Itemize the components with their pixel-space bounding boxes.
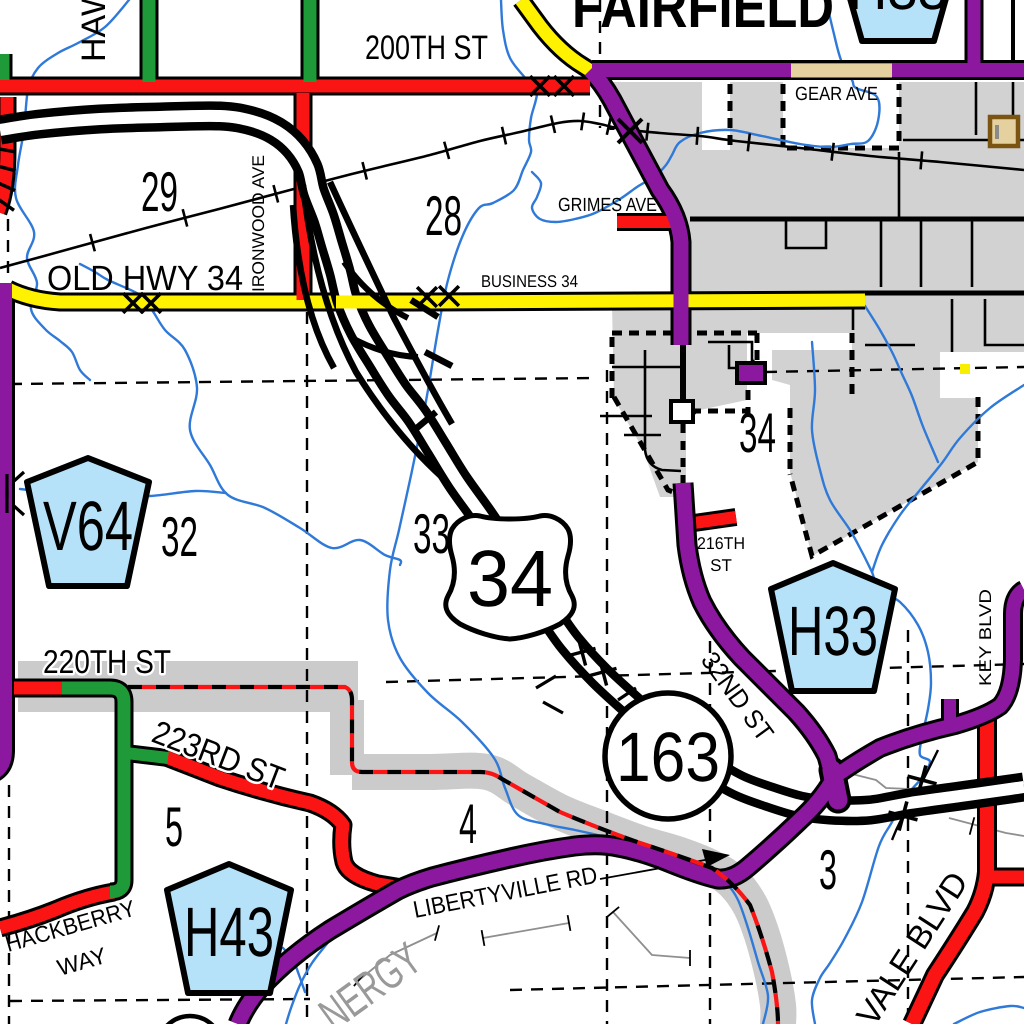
svg-text:H33: H33	[788, 592, 878, 670]
svg-text:OLD HWY 34: OLD HWY 34	[47, 259, 243, 298]
svg-text:BUSINESS 34: BUSINESS 34	[481, 272, 578, 291]
svg-text:GEAR AVE: GEAR AVE	[795, 84, 878, 105]
svg-text:H33: H33	[848, 0, 948, 22]
svg-text:32: 32	[161, 505, 198, 568]
svg-text:34: 34	[467, 534, 553, 623]
svg-text:29: 29	[141, 160, 178, 223]
svg-text:216TH: 216TH	[697, 534, 745, 553]
svg-text:163: 163	[616, 718, 720, 796]
svg-text:FAIRFIELD: FAIRFIELD	[572, 0, 834, 40]
svg-text:34: 34	[739, 401, 776, 464]
svg-text:H43: H43	[184, 893, 274, 971]
svg-text:HAWTHORNE AVE: HAWTHORNE AVE	[75, 0, 113, 62]
svg-text:200TH ST: 200TH ST	[365, 29, 488, 67]
svg-text:5: 5	[165, 795, 183, 858]
svg-text:3: 3	[819, 838, 837, 901]
svg-text:33: 33	[413, 502, 450, 565]
svg-text:V64: V64	[43, 487, 133, 565]
svg-text:KEY BLVD: KEY BLVD	[976, 589, 995, 686]
svg-text:IRONWOOD AVE: IRONWOOD AVE	[249, 155, 268, 292]
svg-text:GRIMES AVE: GRIMES AVE	[558, 195, 657, 216]
svg-text:ST: ST	[710, 556, 732, 575]
svg-text:4: 4	[459, 792, 477, 855]
svg-text:28: 28	[425, 184, 462, 247]
svg-text:220TH ST: 220TH ST	[43, 643, 171, 680]
